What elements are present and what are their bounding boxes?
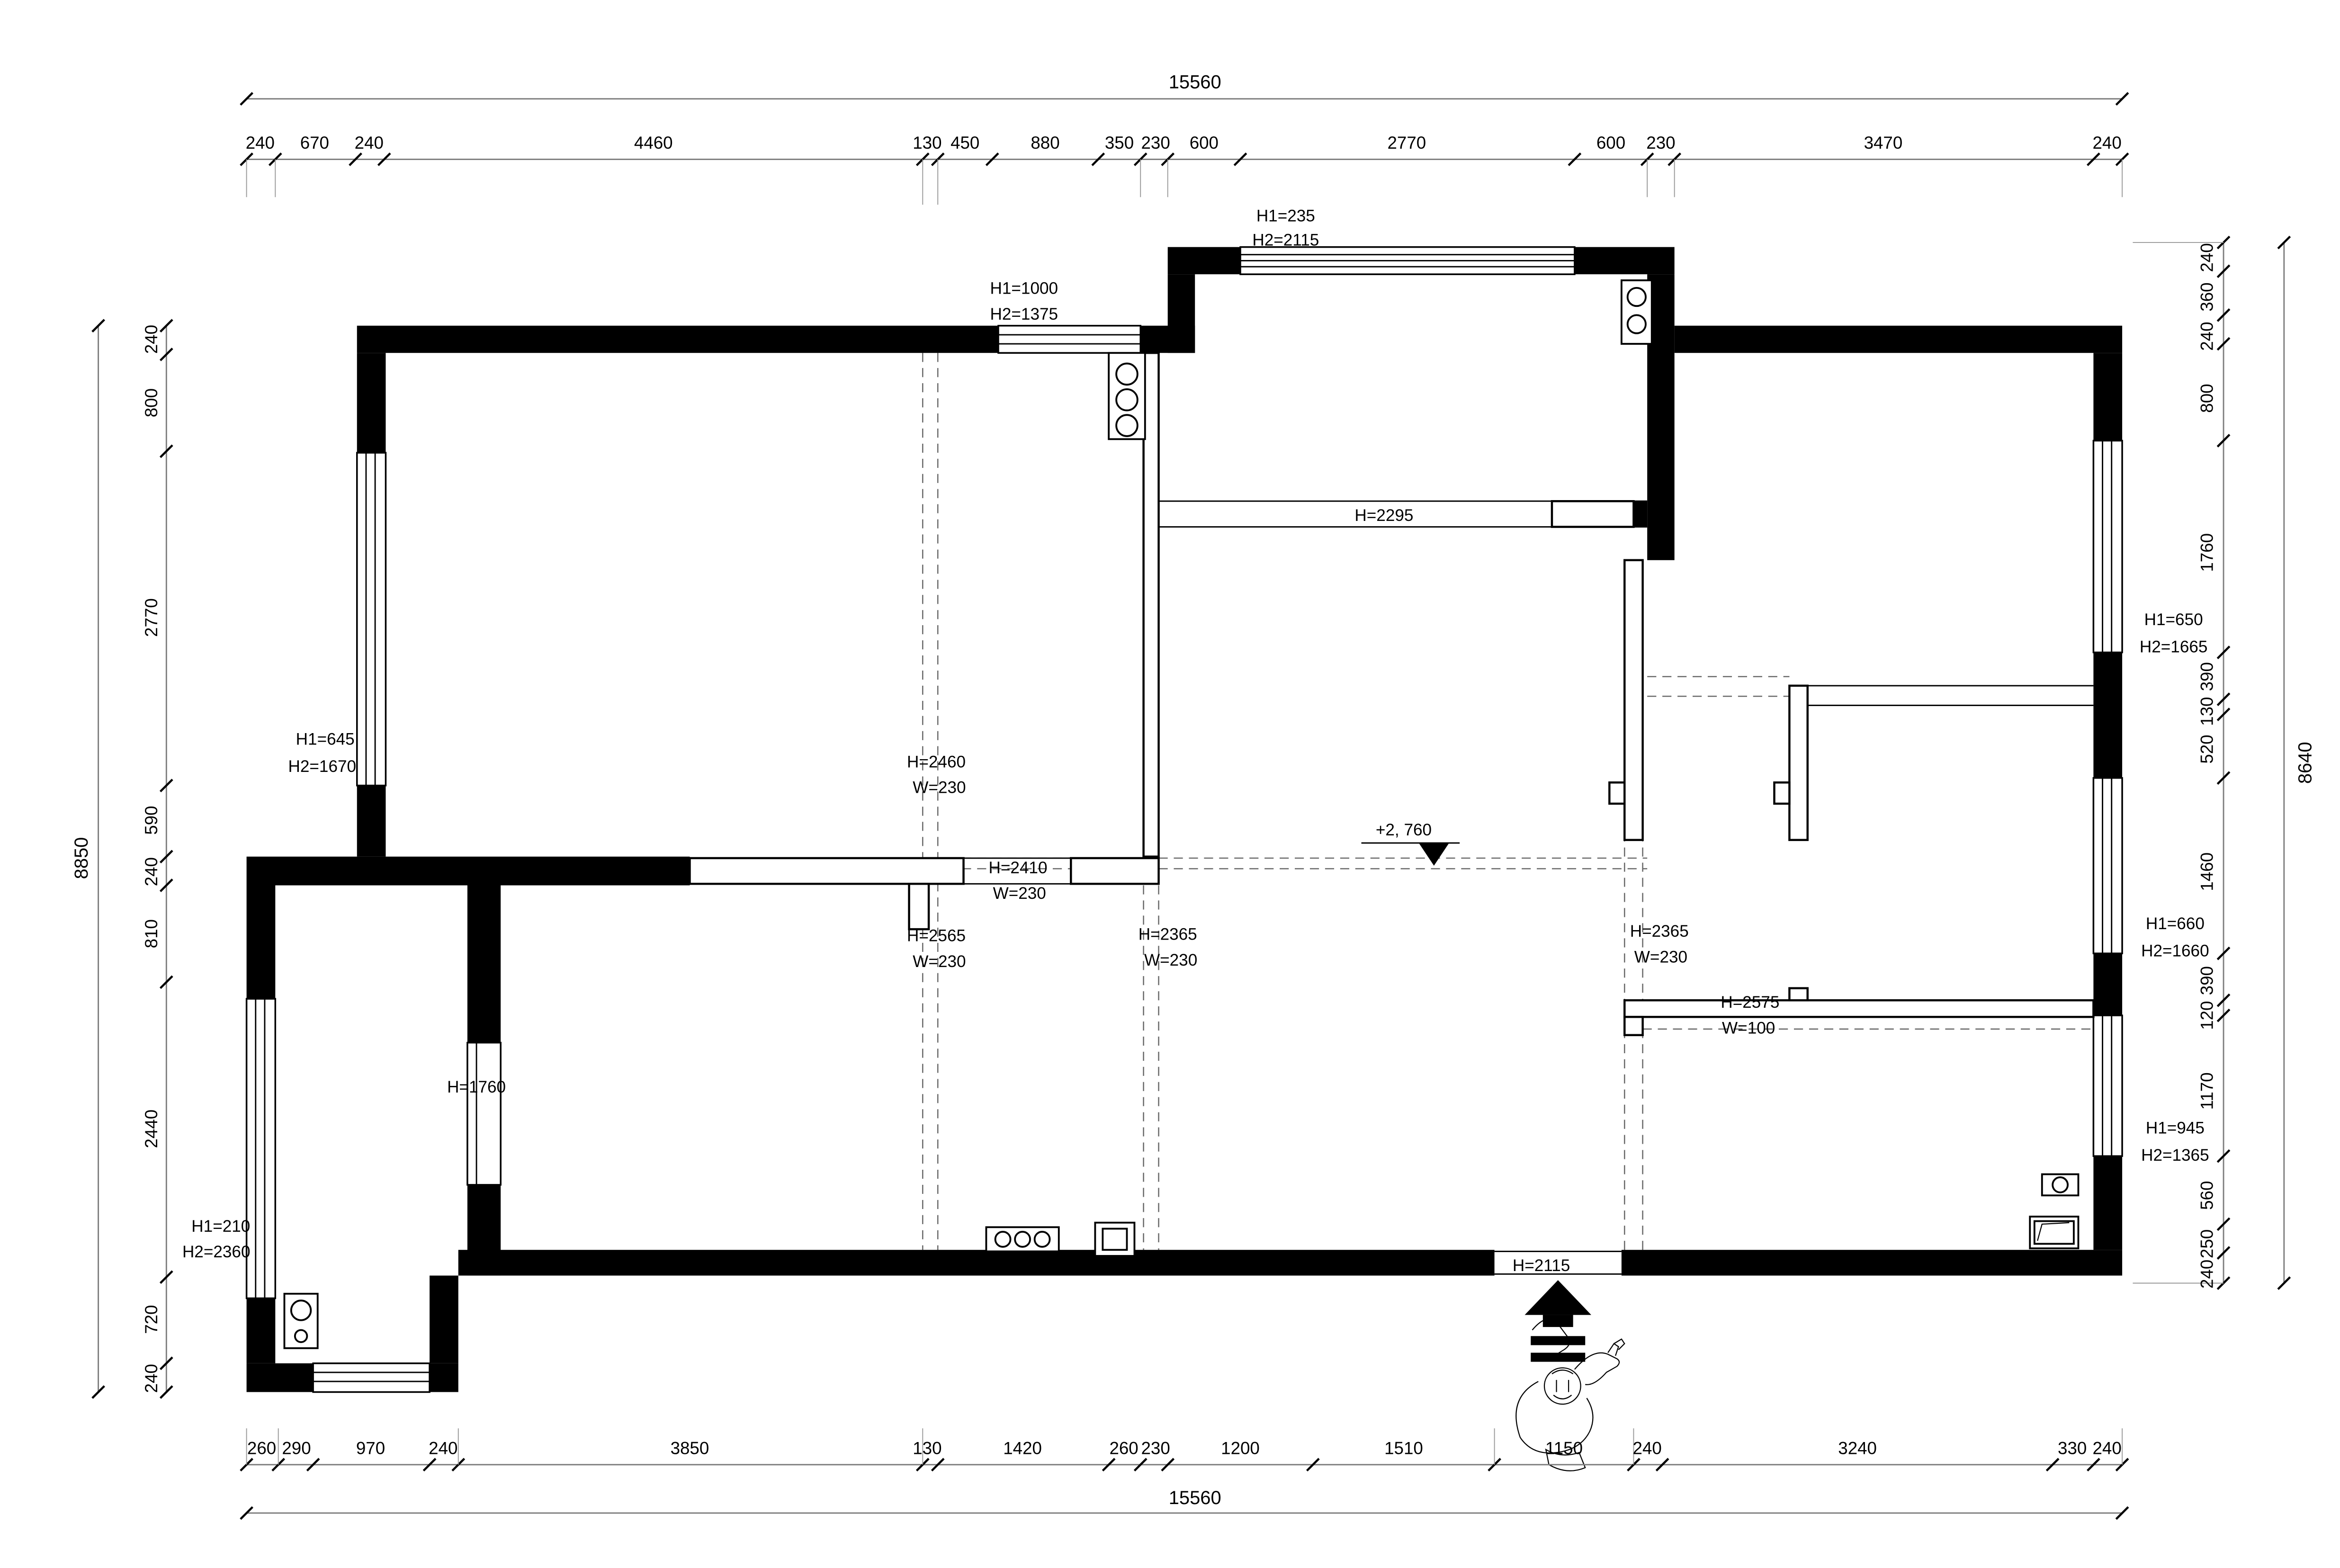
- dim-top-10: 2770: [1388, 133, 1426, 152]
- dim-overall-right: 8640: [2295, 742, 2315, 784]
- dim-bot-1: 290: [282, 1438, 311, 1458]
- dim-bot-11: 1150: [1545, 1438, 1583, 1458]
- window-left-upper: [357, 453, 386, 786]
- dim-top-4: 130: [913, 133, 941, 152]
- beam-height: H=2295: [1354, 506, 1413, 525]
- window-left-lower: [247, 999, 276, 1298]
- dim-bot-9: 1200: [1221, 1438, 1260, 1458]
- level-marker: +2, 760: [1362, 821, 1460, 866]
- opening-1760: H=1760: [447, 1078, 506, 1096]
- partitions: [690, 353, 2093, 1035]
- left-window-h1: H1=645: [296, 730, 355, 748]
- dim-bottom-chain: 260 290 970 240 3850 130 1420 260 230 12…: [241, 1428, 2128, 1470]
- door-2565-w: W=230: [913, 952, 966, 971]
- dim-top-8: 230: [1141, 133, 1170, 152]
- dim-right-1: 360: [2197, 282, 2217, 311]
- window-bottom-left: [313, 1363, 430, 1392]
- window-right-3: [2093, 1015, 2122, 1156]
- dim-left-0: 240: [142, 325, 161, 354]
- dim-left-3: 590: [142, 806, 161, 835]
- dim-bot-0: 260: [247, 1438, 276, 1458]
- dim-bot-3: 240: [429, 1438, 457, 1458]
- right-window1-h2: H2=1665: [2140, 638, 2208, 656]
- dim-top-0: 240: [246, 133, 275, 152]
- door-2365-left-w: W=230: [1144, 951, 1197, 969]
- level-text: +2, 760: [1376, 821, 1432, 839]
- dim-top-13: 3470: [1864, 133, 1903, 152]
- dim-bot-4: 3850: [671, 1438, 709, 1458]
- top-chain-ext: [247, 159, 2122, 205]
- windows: [247, 247, 2122, 1392]
- dim-right-2: 240: [2197, 322, 2217, 350]
- opening-h1760: [467, 1043, 501, 1185]
- dim-top-1: 670: [300, 133, 329, 152]
- window-right-2: [2093, 778, 2122, 953]
- bath-fixture-left: [284, 1294, 317, 1348]
- pipe-shaft-top: [1109, 353, 1145, 439]
- dim-top-14: 240: [2093, 133, 2122, 152]
- dim-right-12: 560: [2197, 1181, 2217, 1210]
- door-2365-right-h: H=2365: [1630, 922, 1689, 941]
- dim-overall-left: 8850: [71, 837, 92, 879]
- top-window-h1: H1=1000: [990, 279, 1058, 298]
- dim-right-8: 1460: [2197, 852, 2217, 891]
- entry-height: H=2115: [1513, 1256, 1570, 1275]
- dim-bot-6: 1420: [1003, 1438, 1042, 1458]
- dim-left-7: 720: [142, 1305, 161, 1334]
- dim-left-8: 240: [142, 1364, 161, 1393]
- left-window-h2: H2=1670: [288, 757, 357, 776]
- entry-arrow: [1524, 1280, 1591, 1362]
- dim-bot-12: 240: [1633, 1438, 1662, 1458]
- window-top-left: [998, 326, 1140, 353]
- dim-right-9: 390: [2197, 966, 2217, 995]
- window-bay: [1240, 247, 1575, 274]
- dim-bot-10: 1510: [1384, 1438, 1423, 1458]
- fixtures: [284, 280, 2078, 1348]
- dim-right-10: 120: [2197, 1001, 2217, 1030]
- dim-bot-2: 970: [356, 1438, 385, 1458]
- dim-right-11: 1170: [2197, 1072, 2217, 1110]
- dim-right-3: 800: [2197, 384, 2217, 412]
- dim-right-overall: 8640: [2278, 236, 2315, 1289]
- dim-bot-7: 260: [1109, 1438, 1138, 1458]
- dim-top-12: 230: [1646, 133, 1675, 152]
- dim-overall-top: 15560: [1169, 72, 1221, 92]
- door-2410-w: W=230: [993, 884, 1046, 903]
- dim-bot-8: 230: [1141, 1438, 1170, 1458]
- dim-right-5: 390: [2197, 662, 2217, 691]
- dim-top-chain: 240 670 240 4460 130 450 880 350 230 600…: [241, 133, 2128, 205]
- dim-left-1: 800: [142, 388, 161, 417]
- dim-top-3: 4460: [634, 133, 673, 152]
- floor-plan-sheet: +2, 760 H1=235 H2=2115 H1=1000 H2=1375 H…: [0, 0, 2340, 1568]
- window-right-1: [2093, 440, 2122, 652]
- door-2460-w: W=230: [913, 779, 966, 797]
- right-window3-h2: H2=1365: [2141, 1146, 2209, 1165]
- dashed-reference-lines: [690, 353, 2093, 1250]
- dim-top-11: 600: [1596, 133, 1625, 152]
- right-window2-h2: H2=1660: [2141, 942, 2209, 960]
- dim-right-13: 250: [2197, 1229, 2217, 1258]
- bottom-left-window-h1: H1=210: [191, 1217, 250, 1236]
- dim-top-9: 600: [1190, 133, 1219, 152]
- dim-right-0: 240: [2197, 243, 2217, 272]
- dim-left-5: 810: [142, 919, 161, 948]
- door-2460-h: H=2460: [907, 753, 966, 771]
- dim-left-4: 240: [142, 857, 161, 886]
- walls: [247, 247, 2122, 1392]
- pipe-shaft-bay: [1622, 280, 1652, 344]
- dim-bot-5: 130: [913, 1438, 941, 1458]
- door-2410-h: H=2410: [988, 859, 1047, 877]
- fixture-bottom-right: [2030, 1174, 2078, 1249]
- dim-right-7: 520: [2197, 735, 2217, 763]
- wall-2575-w: W=100: [1722, 1019, 1775, 1037]
- dim-bottom-overall: 15560: [241, 1487, 2128, 1519]
- right-window1-h1: H1=650: [2144, 610, 2203, 629]
- dim-bot-15: 240: [2093, 1438, 2122, 1458]
- dim-top-7: 350: [1105, 133, 1134, 152]
- dim-top-5: 450: [950, 133, 979, 152]
- dim-left-6: 2440: [142, 1110, 161, 1148]
- dim-top-overall: 15560: [241, 72, 2128, 105]
- top-window-h2: H2=1375: [990, 305, 1058, 323]
- bay-window-h2: H2=2115: [1252, 231, 1319, 249]
- door-2365-left-h: H=2365: [1139, 925, 1197, 943]
- dim-left-2: 2770: [142, 598, 161, 637]
- floor-plan-canvas: +2, 760 H1=235 H2=2115 H1=1000 H2=1375 H…: [0, 0, 2340, 1568]
- dim-right-6: 130: [2197, 697, 2217, 726]
- dim-right-4: 1760: [2197, 533, 2217, 572]
- dim-top-2: 240: [355, 133, 384, 152]
- dim-bot-14: 330: [2058, 1438, 2087, 1458]
- wall-2575-h: H=2575: [1721, 993, 1779, 1012]
- dim-top-6: 880: [1031, 133, 1059, 152]
- door-2565-h: H=2565: [907, 927, 966, 945]
- dim-left-chain: 240 800 2770 590 240 810 2440 720 240: [142, 320, 172, 1398]
- door-2365-right-w: W=230: [1634, 948, 1687, 966]
- right-window3-h1: H1=945: [2146, 1119, 2205, 1137]
- dim-bot-13: 3240: [1838, 1438, 1877, 1458]
- right-window2-h1: H1=660: [2146, 914, 2205, 933]
- bottom-left-window-h2: H2=2360: [182, 1243, 251, 1261]
- dim-right-14: 240: [2197, 1260, 2217, 1289]
- bay-window-h1: H1=235: [1256, 206, 1315, 225]
- dim-overall-bottom: 15560: [1169, 1487, 1221, 1508]
- dim-left-overall: 8850: [71, 320, 104, 1398]
